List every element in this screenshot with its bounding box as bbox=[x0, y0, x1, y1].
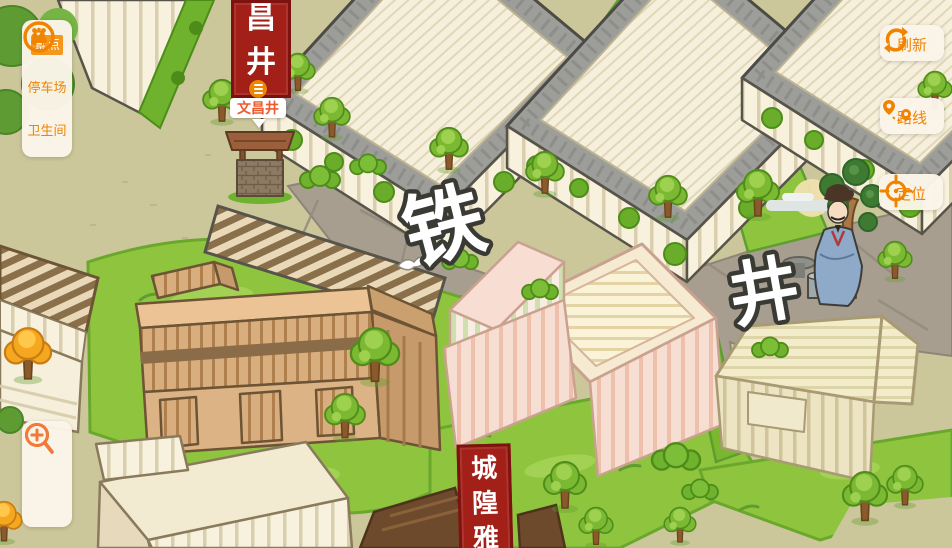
locate-button[interactable]: 定位 bbox=[879, 174, 943, 210]
street-label-jing: 井 bbox=[723, 247, 805, 336]
well-illustration bbox=[226, 132, 294, 204]
sidebar-item-parking[interactable]: P 停车场 bbox=[24, 75, 69, 98]
zoom-panel bbox=[22, 421, 72, 527]
poi-marker[interactable] bbox=[249, 80, 267, 98]
poi-pointer bbox=[252, 119, 266, 135]
refresh-button[interactable]: 刷新 bbox=[880, 25, 944, 61]
zoom-out-icon bbox=[22, 421, 58, 459]
campus-map-stage: 铁 井 昌井 文昌井 城隍雅 景点 P 停车场 bbox=[0, 0, 952, 548]
sidebar-item-label: 卫生间 bbox=[24, 121, 69, 141]
sidebar-panel: 景点 P 停车场 卫生间 bbox=[22, 20, 72, 157]
sidebar-item-label: 停车场 bbox=[24, 78, 69, 98]
poi-banner-chenghuang[interactable]: 城隍雅 bbox=[456, 443, 513, 548]
route-button[interactable]: 路线 bbox=[880, 98, 944, 134]
bottom-banner-text: 城隍雅 bbox=[469, 452, 502, 548]
sidebar-item-restroom[interactable]: 卫生间 bbox=[24, 118, 69, 141]
poi-label[interactable]: 文昌井 bbox=[230, 98, 286, 118]
